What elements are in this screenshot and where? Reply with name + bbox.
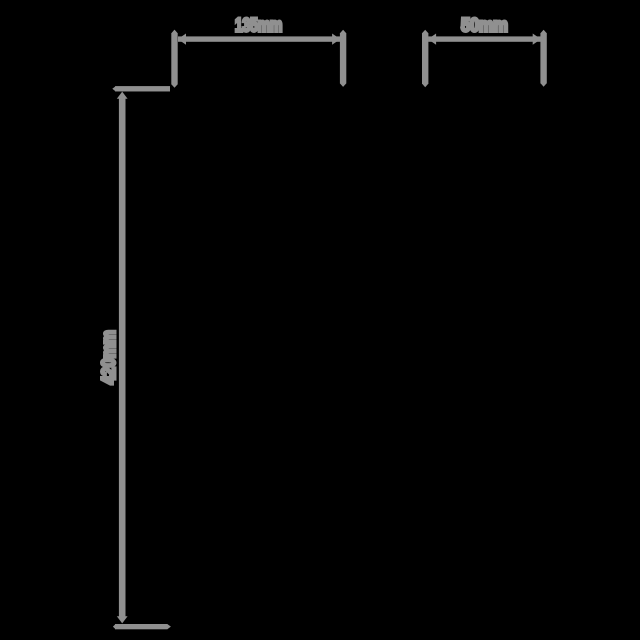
svg-text:135mm: 135mm [235,14,282,36]
svg-text:420mm: 420mm [98,330,120,384]
svg-text:50mm: 50mm [461,14,508,35]
